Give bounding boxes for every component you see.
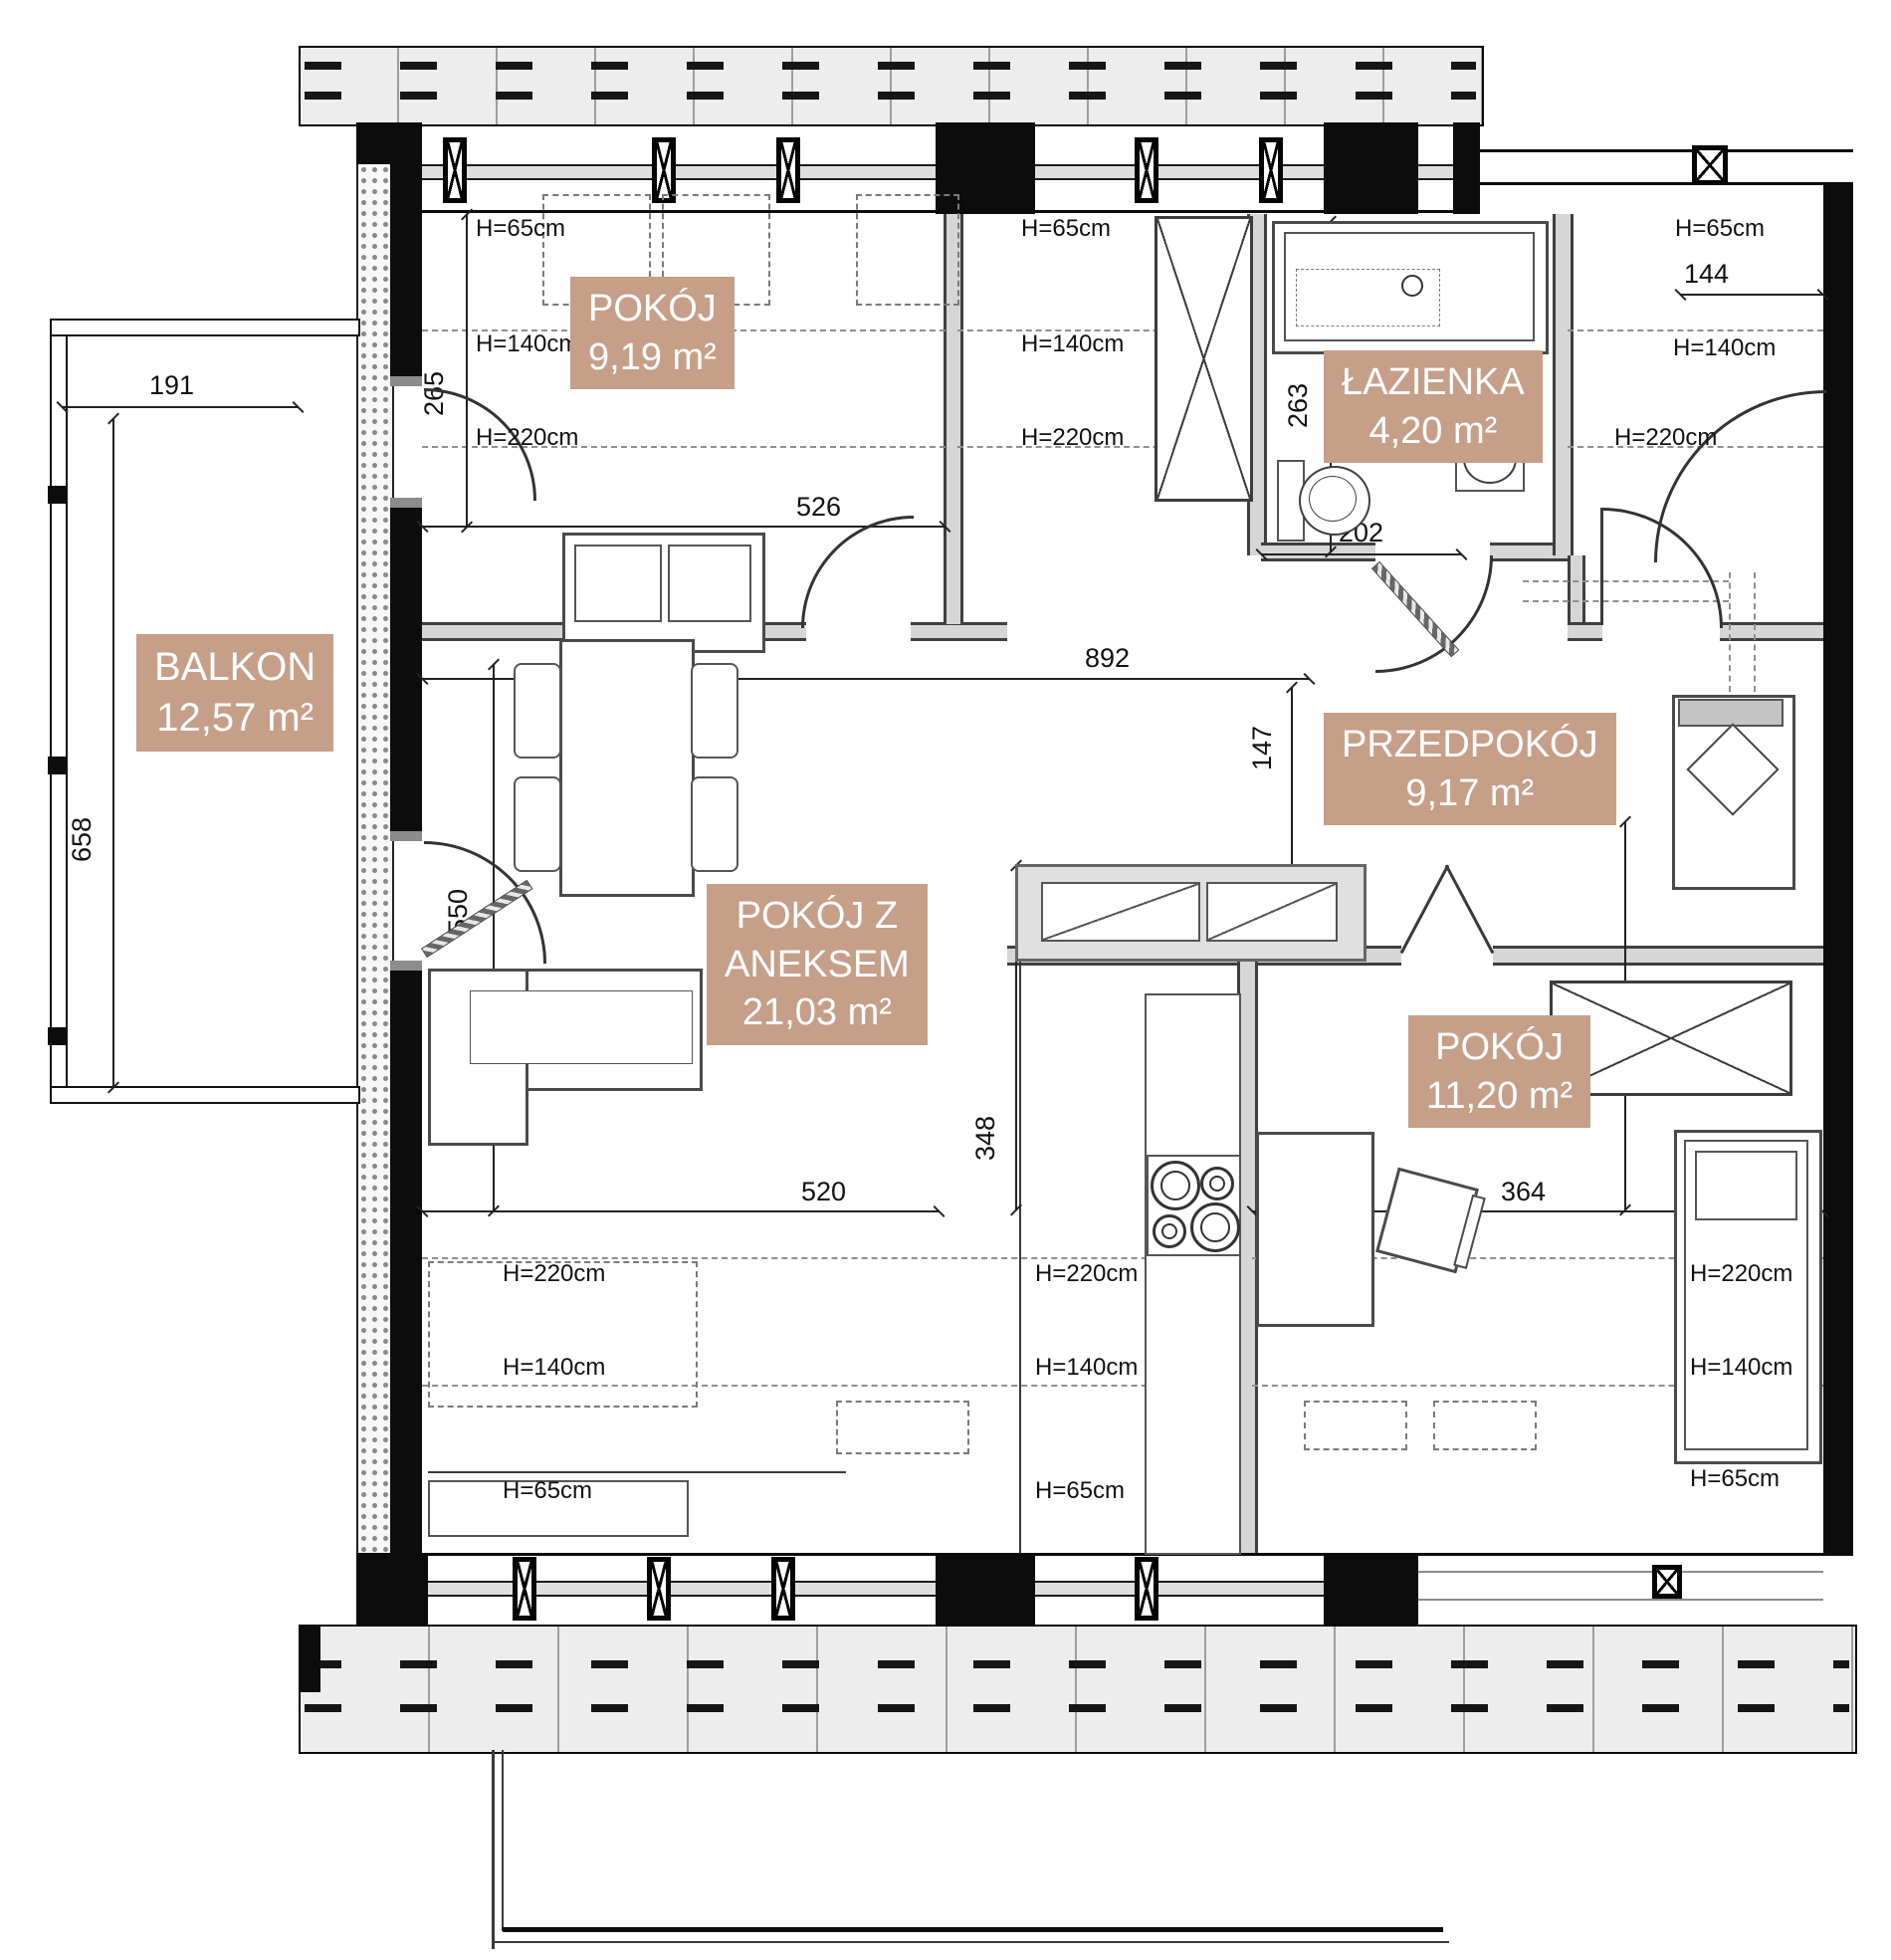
window-mullion-icon [647, 1557, 671, 1621]
eaves-band-top [299, 46, 1484, 126]
dim-text: 520 [801, 1177, 846, 1207]
room-area: 9,19 m² [588, 333, 717, 382]
chair [514, 776, 561, 872]
skylight-outline [836, 1401, 969, 1454]
height-label: H=140cm [1673, 334, 1776, 362]
window-mullion-icon [513, 1557, 536, 1621]
dim-line-191 [62, 406, 299, 408]
terrace-line [502, 1750, 504, 1931]
pillow [574, 544, 662, 622]
door-leaf [1400, 865, 1450, 955]
desk [1256, 1132, 1374, 1327]
skylight-outline [856, 194, 959, 306]
skylight-outline [1433, 1401, 1537, 1450]
room-area: 4,20 m² [1342, 407, 1525, 456]
duct-dashed-line [1754, 572, 1756, 692]
room-name: POKÓJ Z [725, 892, 910, 941]
eaves-dashes [305, 1704, 1849, 1712]
bed-headboard [1678, 699, 1784, 727]
terrace-line [492, 1941, 1449, 1943]
hall-wardrobe-door [1041, 882, 1200, 942]
window-mullion-icon [1135, 137, 1158, 203]
wardrobe [1155, 216, 1253, 502]
balcony-rail-left [50, 319, 68, 1104]
room-area: 9,17 m² [1342, 769, 1598, 818]
height-label: H=140cm [476, 330, 578, 358]
dim-text: 263 [1283, 383, 1314, 428]
height-label: H=140cm [1021, 330, 1124, 358]
entrance-door-arc [1654, 390, 1826, 562]
wall-partition [911, 622, 1007, 641]
room-label-przedpokoj: PRZEDPOKÓJ 9,17 m² [1324, 713, 1616, 825]
bathtub-drain-icon [1401, 275, 1423, 297]
chair [691, 776, 738, 872]
wall-partition [1568, 555, 1585, 622]
wall-pier [1453, 122, 1480, 214]
dim-text: 658 [67, 817, 98, 862]
balcony-post [48, 1027, 66, 1045]
balcony-post [48, 757, 66, 774]
wall-bottom-inner-line [388, 1553, 1853, 1556]
height-label: H=65cm [1675, 215, 1765, 243]
balcony-rail-bottom [50, 1086, 360, 1104]
balcony-post [48, 486, 66, 504]
room-label-pokoj1: POKÓJ 9,19 m² [570, 277, 735, 389]
wall-corner-step [299, 1625, 320, 1692]
burner-icon [1153, 1214, 1186, 1248]
room-name: BALKON [154, 642, 315, 693]
hall-wardrobe-door [1206, 882, 1338, 942]
height-label: H=220cm [1035, 1260, 1138, 1288]
terrace-line [492, 1750, 495, 1949]
dim-line-520 [422, 1210, 940, 1212]
window-mullion-icon [1259, 137, 1283, 203]
door-jamb [390, 961, 422, 971]
room-label-pokoj2: POKÓJ 11,20 m² [1408, 1015, 1590, 1128]
height-label: H=220cm [476, 424, 578, 452]
height-label: H=140cm [1690, 1354, 1792, 1382]
pillow [668, 544, 751, 622]
terrace-line [503, 1927, 1443, 1932]
eaves-dashes [305, 1660, 1849, 1668]
window-top [422, 164, 936, 180]
wall-pier [1324, 1553, 1418, 1625]
window-top [1418, 164, 1453, 180]
door-jamb [390, 376, 422, 386]
dining-table [559, 639, 695, 897]
window-mullion-icon [1692, 145, 1728, 185]
room-area: 21,03 m² [725, 988, 910, 1037]
sofa-seat [470, 990, 693, 1064]
window-mullion-icon [443, 137, 467, 203]
wall-partition [1553, 214, 1574, 555]
balcony-rail-top [50, 319, 360, 336]
dim-text: 191 [149, 370, 194, 401]
dim-text: 144 [1684, 259, 1729, 290]
room-label-balkon: BALKON 12,57 m² [136, 634, 333, 752]
dim-line-658 [112, 418, 114, 1088]
window-mullion-icon [1652, 1565, 1682, 1599]
height-label: H=140cm [1035, 1354, 1138, 1382]
skylight-outline [1304, 1401, 1407, 1450]
door-arc [1375, 555, 1493, 673]
window-bottom [1035, 1581, 1324, 1597]
wall-pier [1324, 122, 1418, 214]
wall-top-right-line [1480, 149, 1853, 152]
room-name: ANEKSEM [725, 941, 910, 989]
dim-text: 147 [1247, 726, 1278, 770]
room-name: PRZEDPOKÓJ [1342, 721, 1598, 769]
room-label-salon: POKÓJ Z ANEKSEM 21,03 m² [707, 884, 928, 1045]
window-mullion-icon [776, 137, 800, 203]
burner-icon [1200, 1167, 1234, 1200]
kitchen-partition-line [1019, 960, 1021, 1553]
room-name: POKÓJ [588, 285, 717, 333]
chair [514, 663, 561, 759]
window-bottom [428, 1581, 936, 1597]
burner-icon [1190, 1202, 1240, 1252]
eaves-dashes [305, 62, 1476, 70]
dim-line-144 [1680, 294, 1823, 296]
wall-partition [1720, 622, 1823, 641]
eaves-dashes [305, 92, 1476, 100]
height-label: H=220cm [1021, 424, 1124, 452]
room-label-lazienka: ŁAZIENKA 4,20 m² [1324, 350, 1543, 463]
height-label: H=65cm [1035, 1477, 1125, 1505]
wall-left [390, 961, 422, 1553]
height-label: H=220cm [1614, 424, 1717, 452]
room-area: 12,57 m² [154, 693, 315, 744]
height-label: H=65cm [476, 215, 565, 243]
height-label: H=220cm [1690, 1260, 1792, 1288]
dim-text: 364 [1501, 1177, 1546, 1207]
room-name: ŁAZIENKA [1342, 358, 1525, 407]
door-jamb [390, 831, 422, 841]
door-leaf [1445, 865, 1495, 955]
tv-bench-line [428, 1471, 846, 1473]
wall-right [1823, 184, 1853, 1553]
wall-left [390, 164, 422, 386]
wall-top-right-line [1480, 182, 1853, 185]
wall-left [390, 498, 422, 841]
burner-icon [1151, 1161, 1200, 1210]
eaves-band-bottom [299, 1625, 1857, 1754]
height-line-140 [1568, 329, 1823, 331]
door-arc [801, 516, 914, 628]
dim-text: 526 [796, 492, 841, 523]
height-line-220 [422, 1257, 1237, 1259]
floor-plan: 191 658 265 526 892 550 263 202 144 147 … [0, 0, 1891, 1960]
height-label: H=65cm [503, 1477, 592, 1505]
dim-text: 348 [970, 1116, 1001, 1161]
room-name: POKÓJ [1426, 1023, 1573, 1072]
wall-bottom-right-line [1418, 1571, 1823, 1573]
window-mullion-icon [1135, 1557, 1158, 1621]
height-label: H=65cm [1021, 215, 1111, 243]
height-label: H=140cm [503, 1354, 605, 1382]
wall-insulation-hatch [356, 164, 394, 1553]
window-mullion-icon [771, 1557, 795, 1621]
wall-pier [936, 1553, 1035, 1625]
door-leaf [1600, 508, 1603, 625]
wall-partition [1493, 946, 1823, 966]
kitchen-counter [1145, 993, 1241, 1555]
dim-text: 892 [1085, 643, 1130, 674]
wall-partition [1568, 622, 1602, 641]
height-label: H=65cm [1690, 1465, 1780, 1493]
chair [691, 663, 738, 759]
wall-pier [356, 1553, 428, 1625]
room-area: 11,20 m² [1426, 1072, 1573, 1121]
duct-dashed-line [1729, 572, 1731, 692]
height-label: H=220cm [503, 1260, 605, 1288]
wall-bottom-right-line [1418, 1599, 1823, 1601]
pillow [1695, 1151, 1797, 1220]
toilet-bowl-inner [1309, 476, 1357, 522]
door-jamb [390, 498, 422, 508]
